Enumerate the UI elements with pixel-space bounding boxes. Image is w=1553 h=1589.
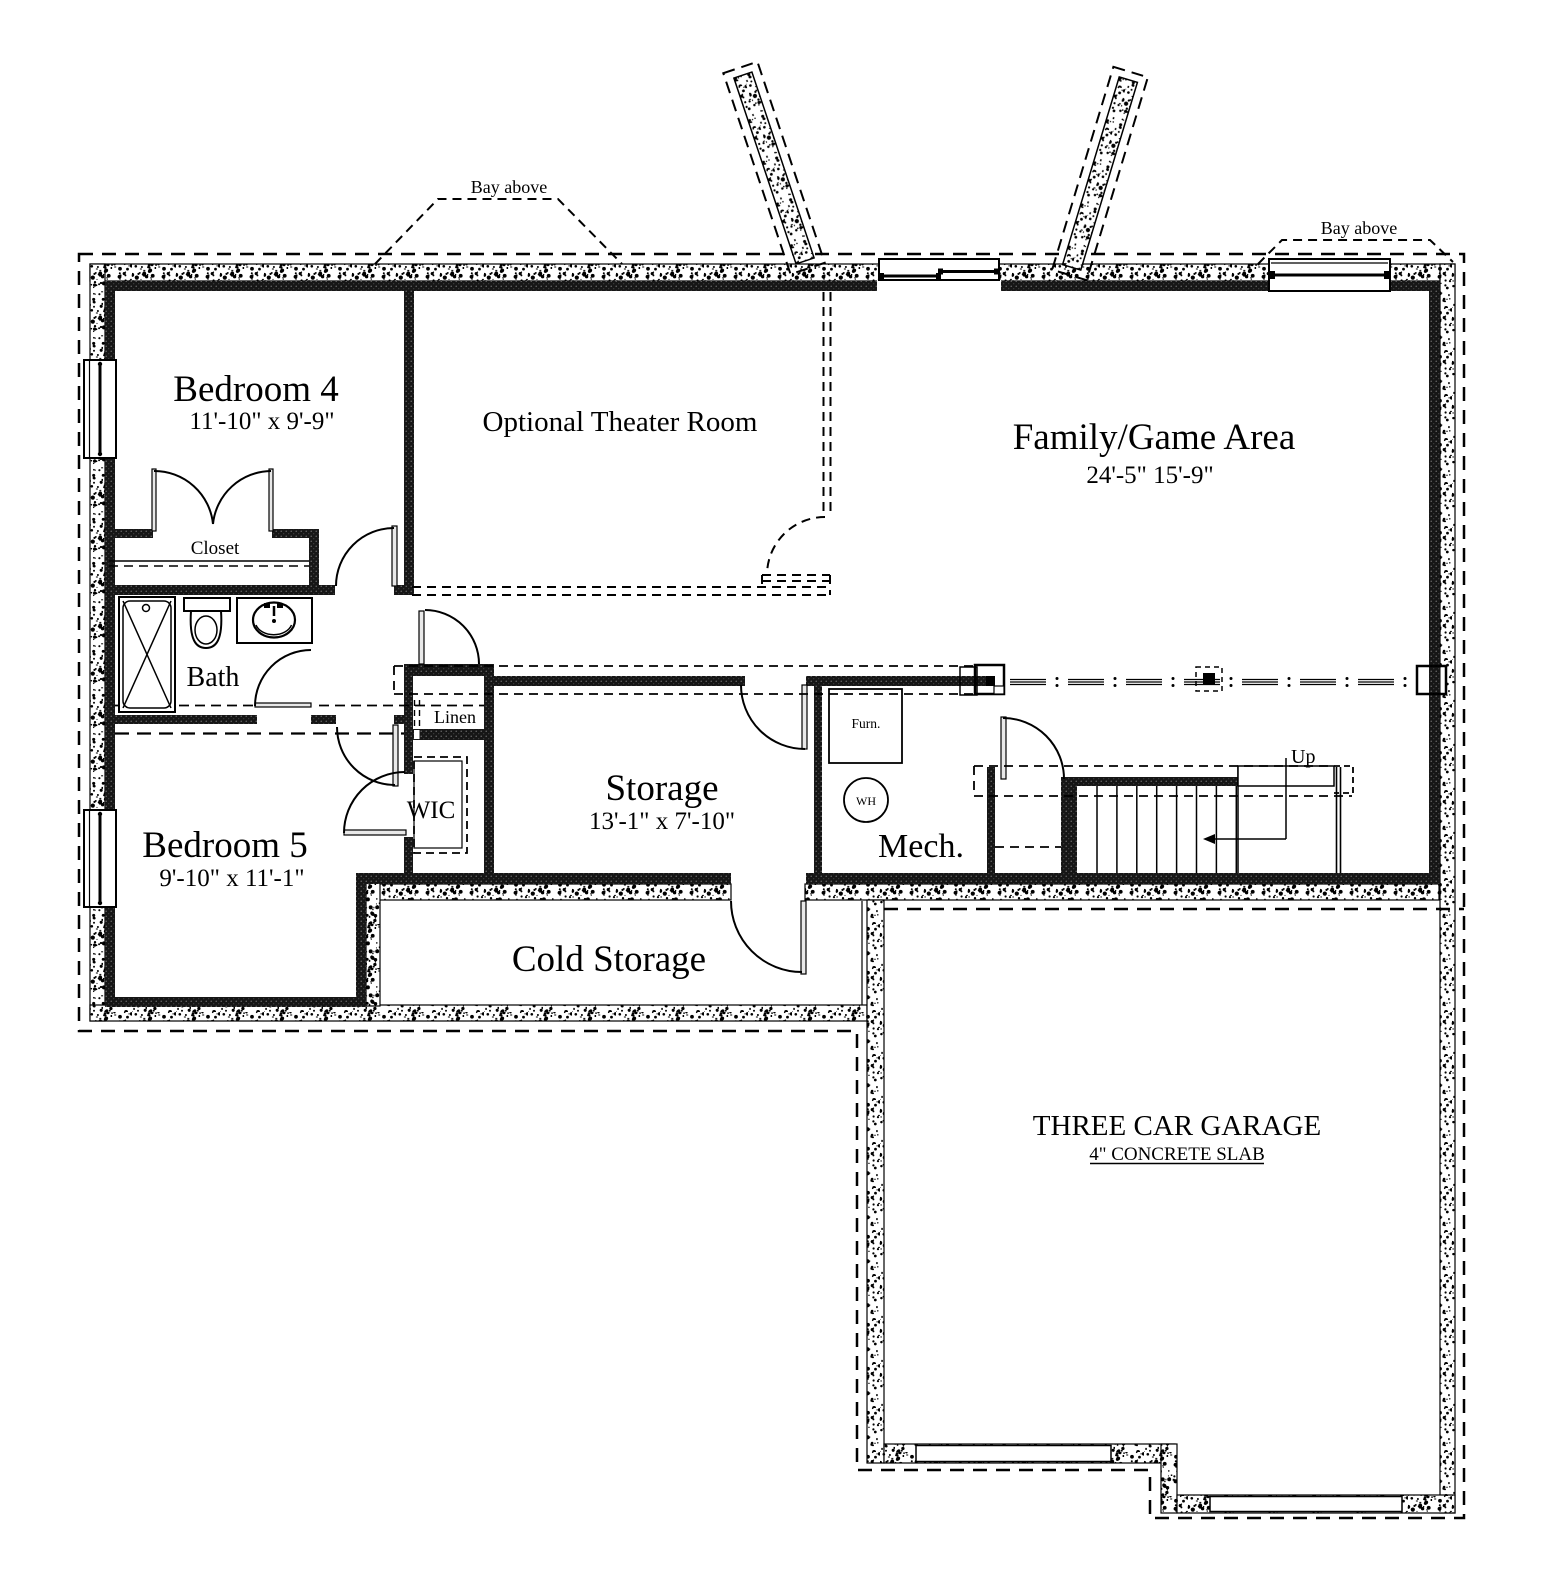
svg-text:4" CONCRETE SLAB: 4" CONCRETE SLAB (1089, 1144, 1265, 1165)
svg-text:Bay above: Bay above (1321, 218, 1397, 238)
svg-text:13'-1" x 7'-10": 13'-1" x 7'-10" (589, 808, 735, 835)
svg-text:9'-10" x 11'-1": 9'-10" x 11'-1" (159, 865, 304, 892)
svg-text:Linen: Linen (434, 707, 476, 727)
svg-text:Storage: Storage (605, 768, 718, 809)
svg-text:Mech.: Mech. (878, 828, 964, 865)
svg-text:Bedroom 5: Bedroom 5 (142, 825, 307, 866)
svg-text:THREE CAR GARAGE: THREE CAR GARAGE (1033, 1110, 1321, 1142)
svg-text:Bath: Bath (187, 662, 240, 693)
svg-text:24'-5" 15'-9": 24'-5" 15'-9" (1086, 462, 1213, 489)
svg-text:Family/Game Area: Family/Game Area (1013, 417, 1296, 458)
svg-text:Bay above: Bay above (471, 177, 547, 197)
svg-text:Optional Theater Room: Optional Theater Room (483, 406, 758, 438)
svg-text:WIC: WIC (407, 797, 456, 824)
svg-text:Furn.: Furn. (852, 716, 881, 731)
svg-text:Up: Up (1291, 746, 1315, 768)
svg-text:Cold Storage: Cold Storage (512, 939, 706, 980)
svg-text:11'-10" x 9'-9": 11'-10" x 9'-9" (189, 408, 334, 435)
svg-text:Closet: Closet (191, 538, 240, 559)
svg-text:Bedroom 4: Bedroom 4 (173, 369, 338, 410)
svg-text:WH: WH (856, 794, 876, 808)
